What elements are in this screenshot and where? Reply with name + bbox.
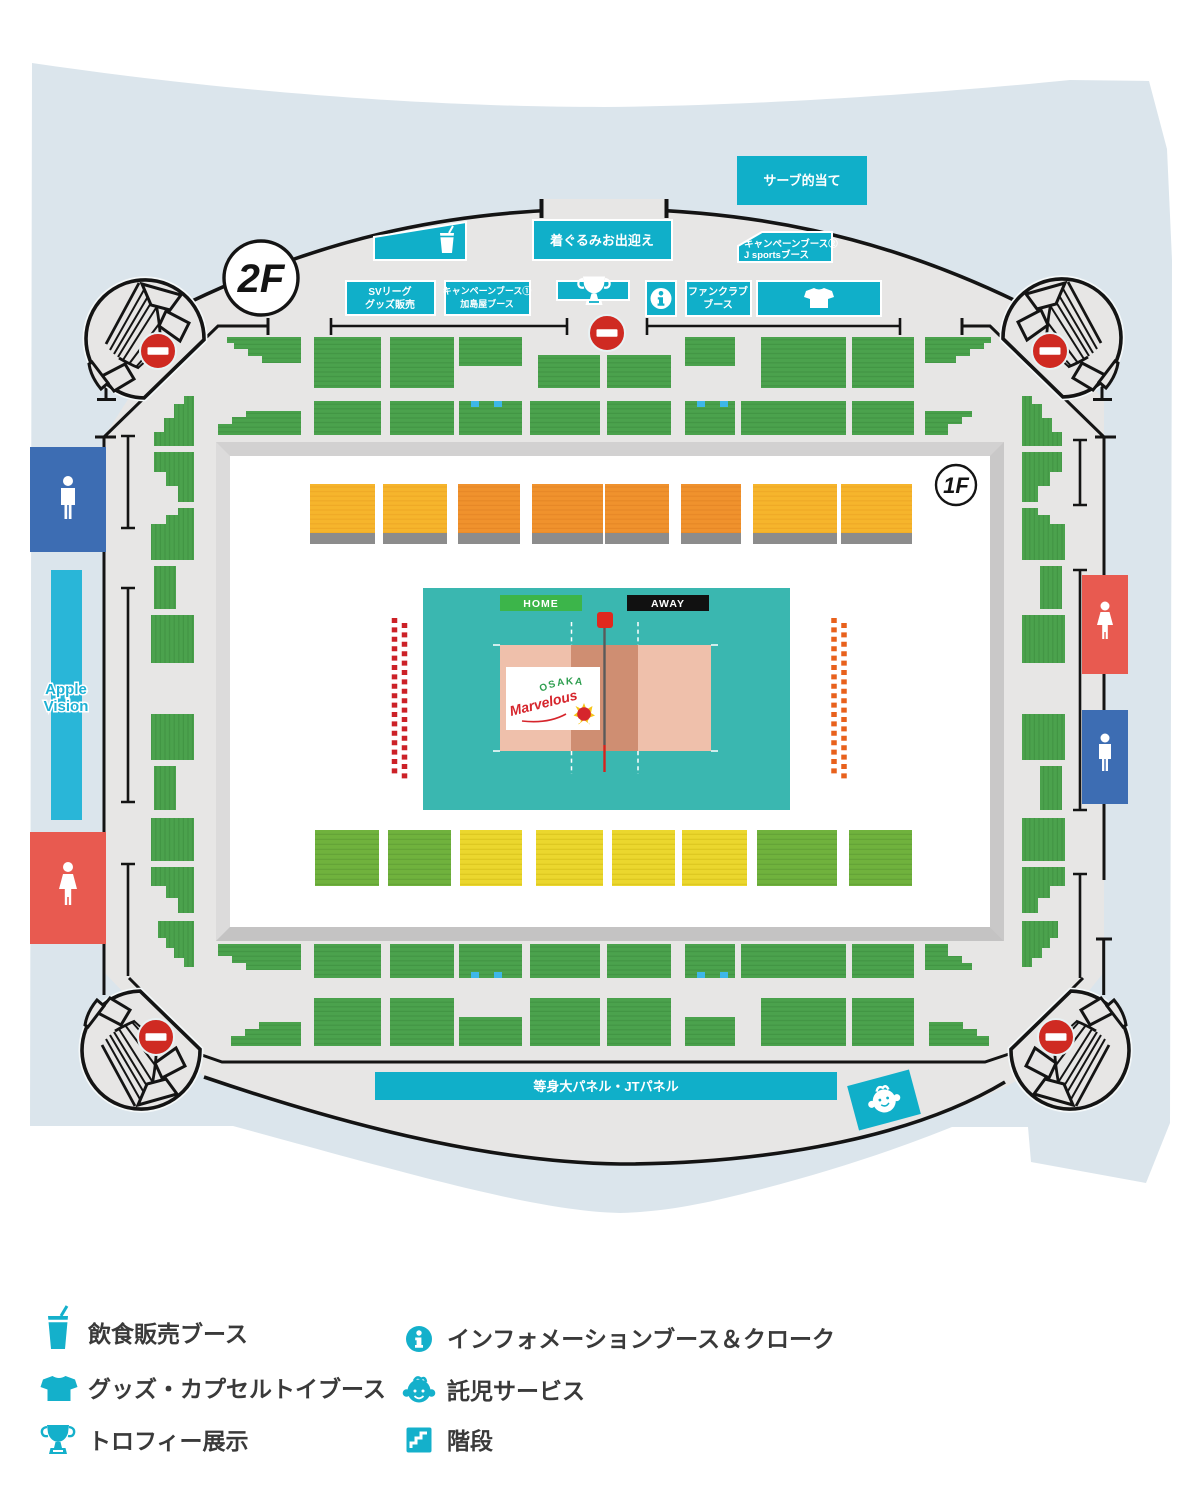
svg-text:ブース: ブース xyxy=(703,298,733,311)
svg-text:AWAY: AWAY xyxy=(651,598,685,610)
svg-text:2F: 2F xyxy=(237,257,286,301)
svg-text:サーブ的当て: サーブ的当て xyxy=(763,173,840,188)
svg-text:等身大パネル・JTパネル: 等身大パネル・JTパネル xyxy=(532,1079,678,1094)
svg-text:ファンクラブ: ファンクラブ xyxy=(688,285,748,298)
svg-text:HOME: HOME xyxy=(523,598,559,610)
svg-text:SVリーグ: SVリーグ xyxy=(368,285,411,298)
svg-text:キャンペーンブース②: キャンペーンブース② xyxy=(744,238,838,250)
svg-text:1F: 1F xyxy=(943,473,969,498)
svg-text:Apple: Apple xyxy=(45,681,87,698)
svg-text:インフォメーションブース＆クローク: インフォメーションブース＆クローク xyxy=(447,1326,835,1352)
svg-text:託児サービス: 託児サービス xyxy=(447,1378,585,1404)
svg-text:Vision: Vision xyxy=(44,698,89,715)
svg-text:着ぐるみお出迎え: 着ぐるみお出迎え xyxy=(549,233,654,248)
svg-text:グッズ・カプセルトイブース: グッズ・カプセルトイブース xyxy=(88,1376,386,1402)
svg-text:飲食販売ブース: 飲食販売ブース xyxy=(87,1321,248,1347)
svg-text:キャンペーンブース①: キャンペーンブース① xyxy=(443,285,532,296)
svg-text:グッズ販売: グッズ販売 xyxy=(365,298,415,311)
svg-text:J sportsブース: J sportsブース xyxy=(744,249,809,261)
svg-text:トロフィー展示: トロフィー展示 xyxy=(88,1428,249,1454)
svg-text:加島屋ブース: 加島屋ブース xyxy=(459,298,514,309)
svg-text:階段: 階段 xyxy=(447,1428,493,1454)
